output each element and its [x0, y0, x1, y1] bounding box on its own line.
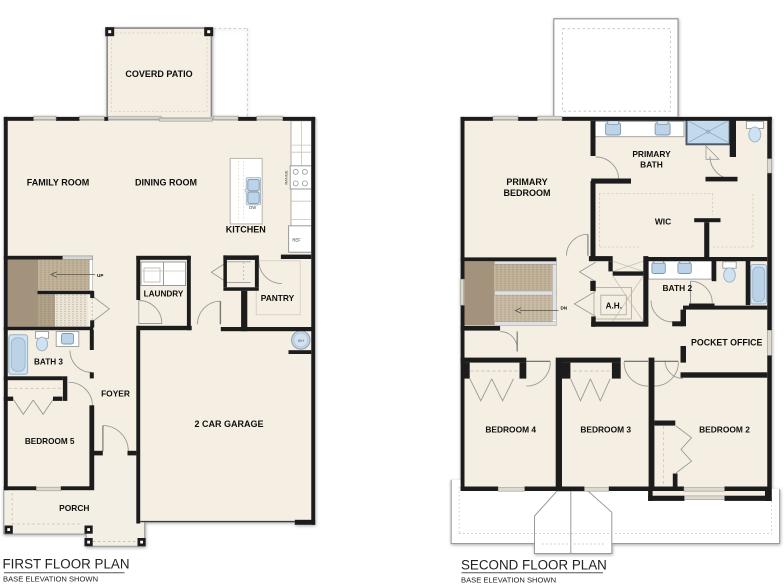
- svg-text:DW: DW: [249, 205, 256, 210]
- svg-text:UP: UP: [97, 273, 103, 278]
- svg-text:LAUNDRY: LAUNDRY: [144, 290, 184, 299]
- svg-text:POCKET OFFICE: POCKET OFFICE: [691, 337, 762, 347]
- svg-text:BASE ELEVATION SHOWN: BASE ELEVATION SHOWN: [3, 575, 98, 584]
- svg-text:PRIMARY: PRIMARY: [632, 149, 671, 159]
- svg-text:SECOND FLOOR PLAN: SECOND FLOOR PLAN: [461, 558, 607, 573]
- svg-text:PRIMARY: PRIMARY: [506, 177, 547, 187]
- svg-text:PANTRY: PANTRY: [261, 293, 295, 303]
- svg-text:REF: REF: [292, 238, 301, 243]
- svg-text:2 CAR GARAGE: 2 CAR GARAGE: [194, 419, 263, 429]
- svg-text:BEDROOM 3: BEDROOM 3: [580, 424, 631, 434]
- svg-text:WH: WH: [298, 339, 304, 343]
- svg-text:FIRST FLOOR PLAN: FIRST FLOOR PLAN: [3, 557, 130, 572]
- svg-text:BEDROOM: BEDROOM: [504, 188, 551, 198]
- svg-text:BEDROOM 2: BEDROOM 2: [699, 424, 750, 434]
- svg-text:BEDROOM 4: BEDROOM 4: [485, 424, 536, 434]
- svg-text:BEDROOM 5: BEDROOM 5: [25, 437, 75, 446]
- svg-text:DN: DN: [561, 305, 568, 310]
- svg-text:FAMILY ROOM: FAMILY ROOM: [27, 177, 90, 187]
- svg-text:PORCH: PORCH: [59, 503, 89, 513]
- svg-text:BATH 3: BATH 3: [34, 357, 63, 366]
- svg-text:BASE ELEVATION SHOWN: BASE ELEVATION SHOWN: [461, 576, 556, 585]
- svg-text:KITCHEN: KITCHEN: [226, 225, 266, 235]
- svg-text:COVERD PATIO: COVERD PATIO: [125, 69, 192, 79]
- svg-text:A.H.: A.H.: [606, 302, 622, 311]
- svg-text:BATH 2: BATH 2: [662, 283, 692, 293]
- svg-text:WIC: WIC: [655, 217, 671, 227]
- svg-text:BATH: BATH: [640, 159, 663, 169]
- svg-text:FOYER: FOYER: [101, 389, 130, 399]
- svg-text:DINING ROOM: DINING ROOM: [135, 177, 197, 187]
- svg-text:RANGE: RANGE: [283, 170, 288, 185]
